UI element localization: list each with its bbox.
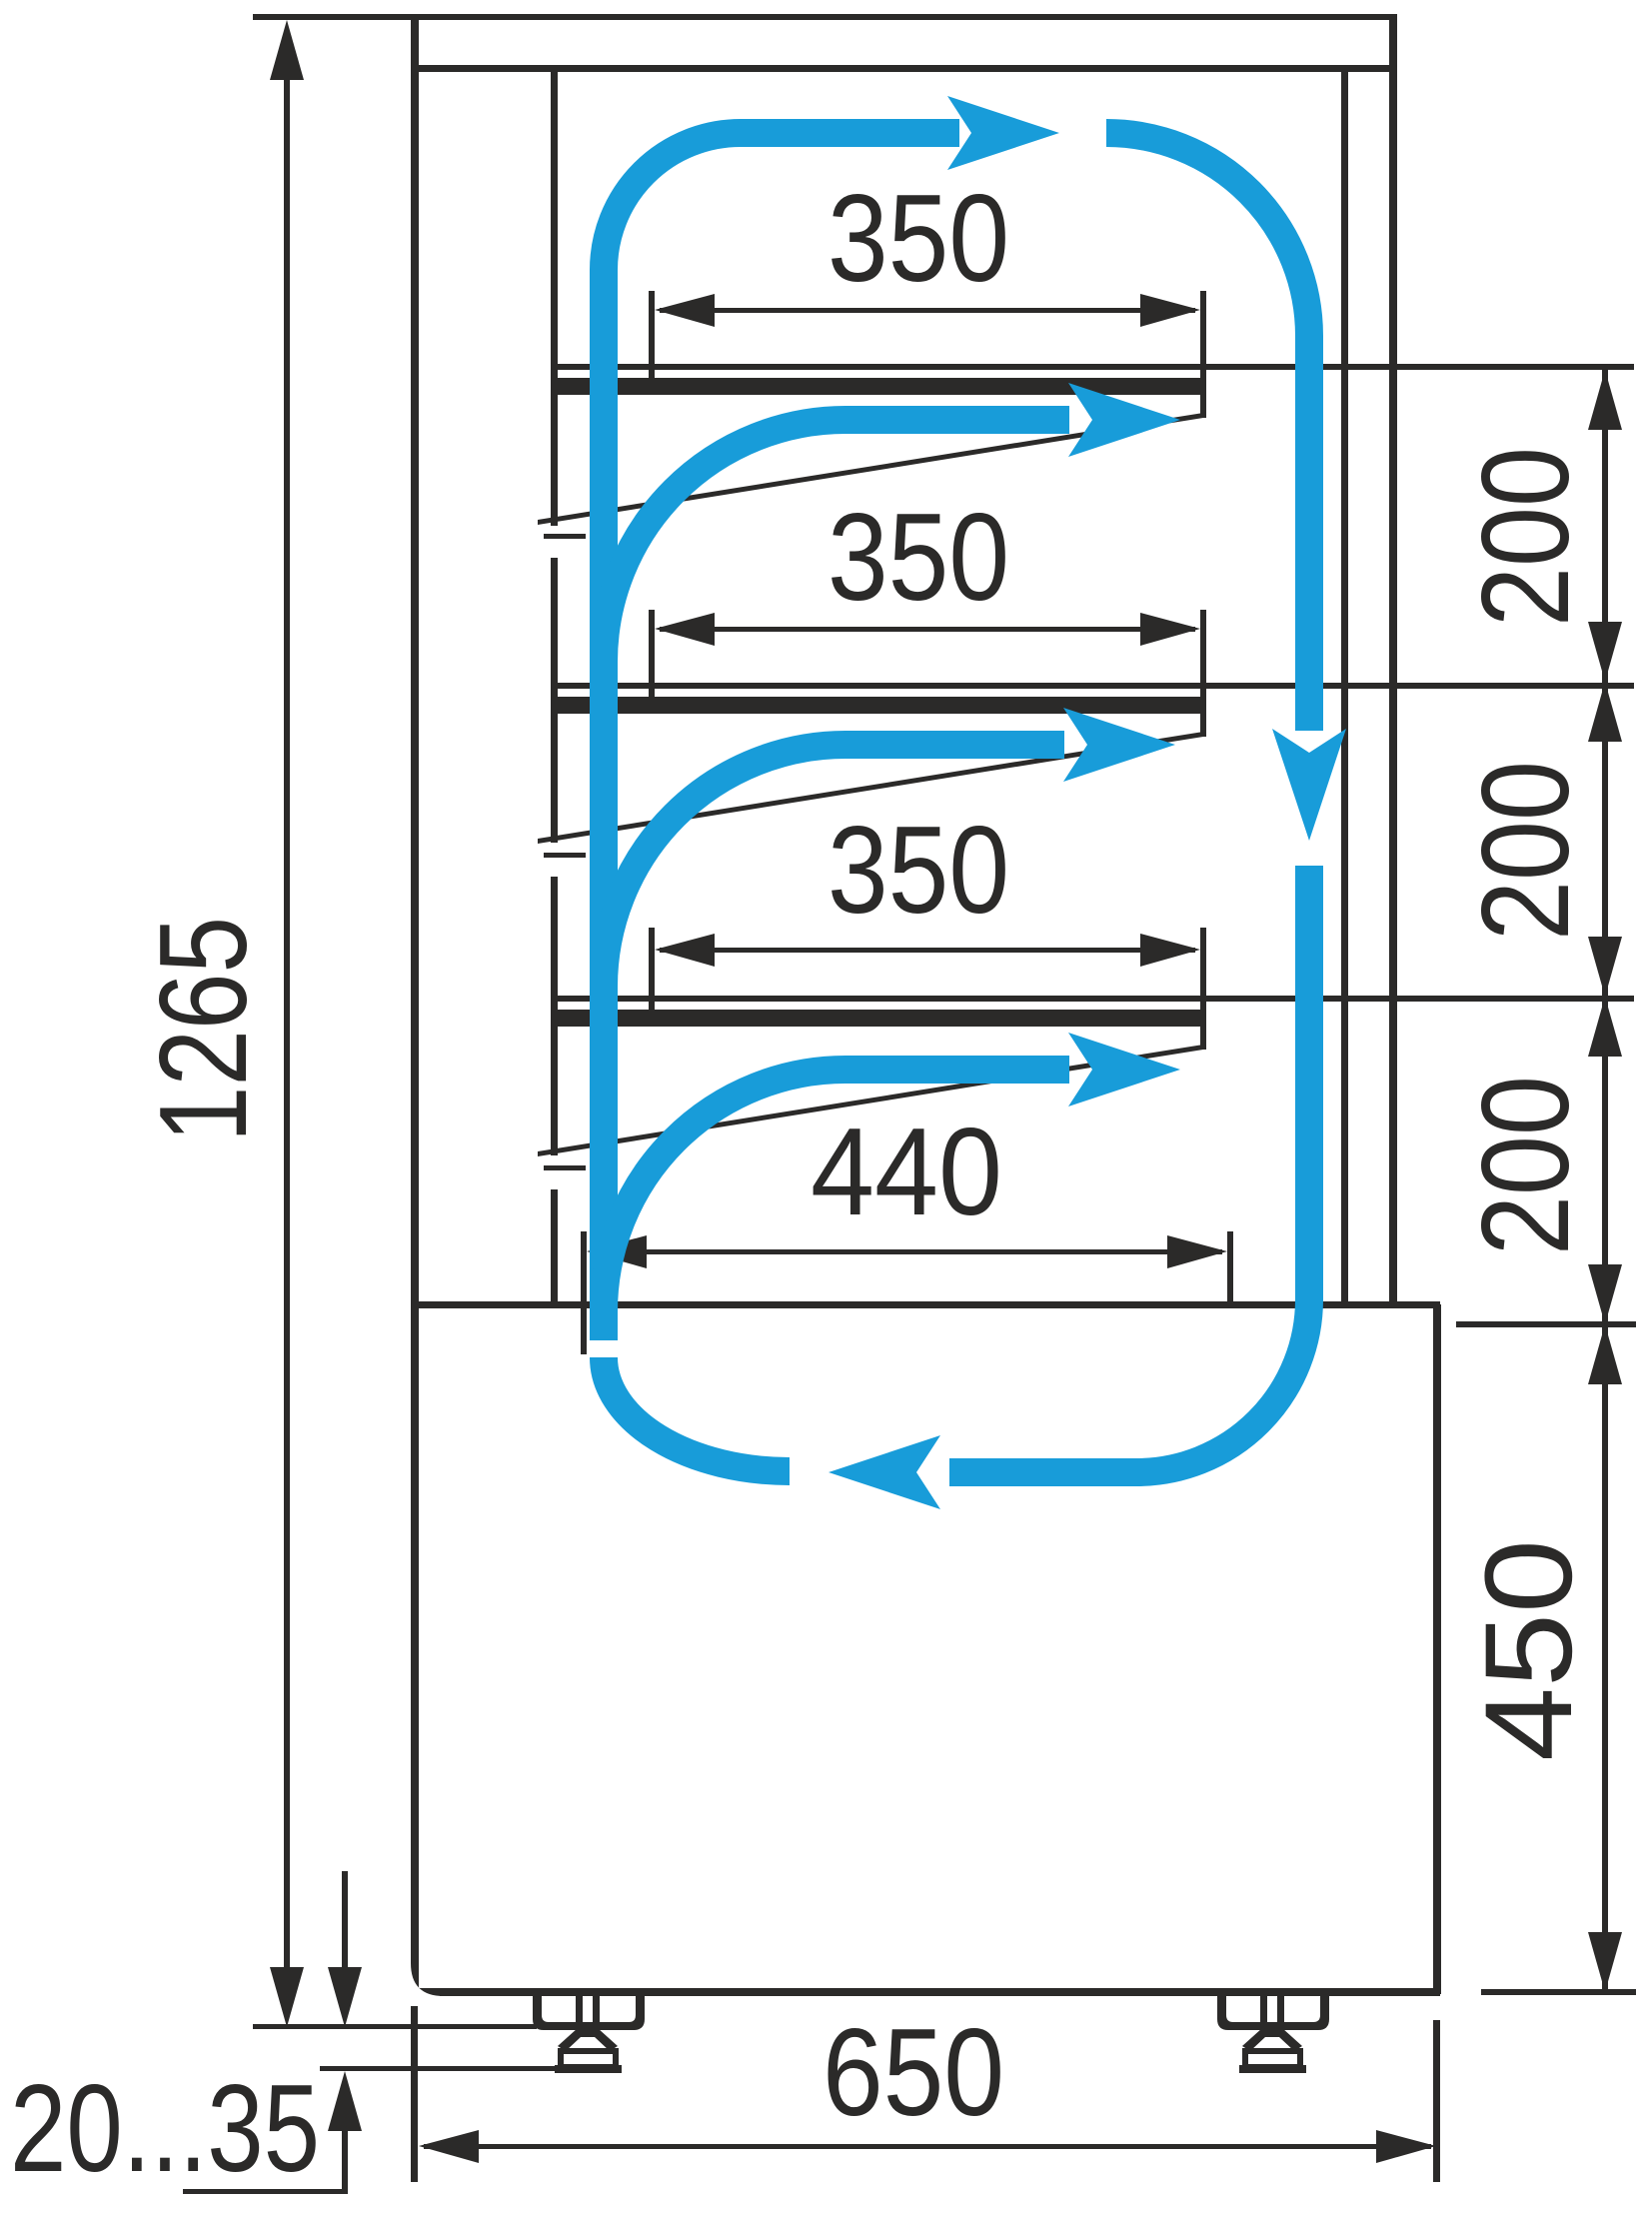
svg-text:440: 440 [811,1104,1002,1241]
svg-text:200: 200 [1457,761,1595,941]
svg-text:350: 350 [827,802,1009,940]
svg-text:200: 200 [1457,1076,1595,1255]
svg-text:1265: 1265 [135,917,273,1142]
svg-text:20...35: 20...35 [10,2060,320,2198]
svg-text:350: 350 [827,489,1009,627]
svg-text:450: 450 [1460,1539,1598,1761]
svg-text:200: 200 [1457,447,1595,627]
svg-text:650: 650 [823,2004,1004,2142]
svg-text:350: 350 [827,170,1009,308]
